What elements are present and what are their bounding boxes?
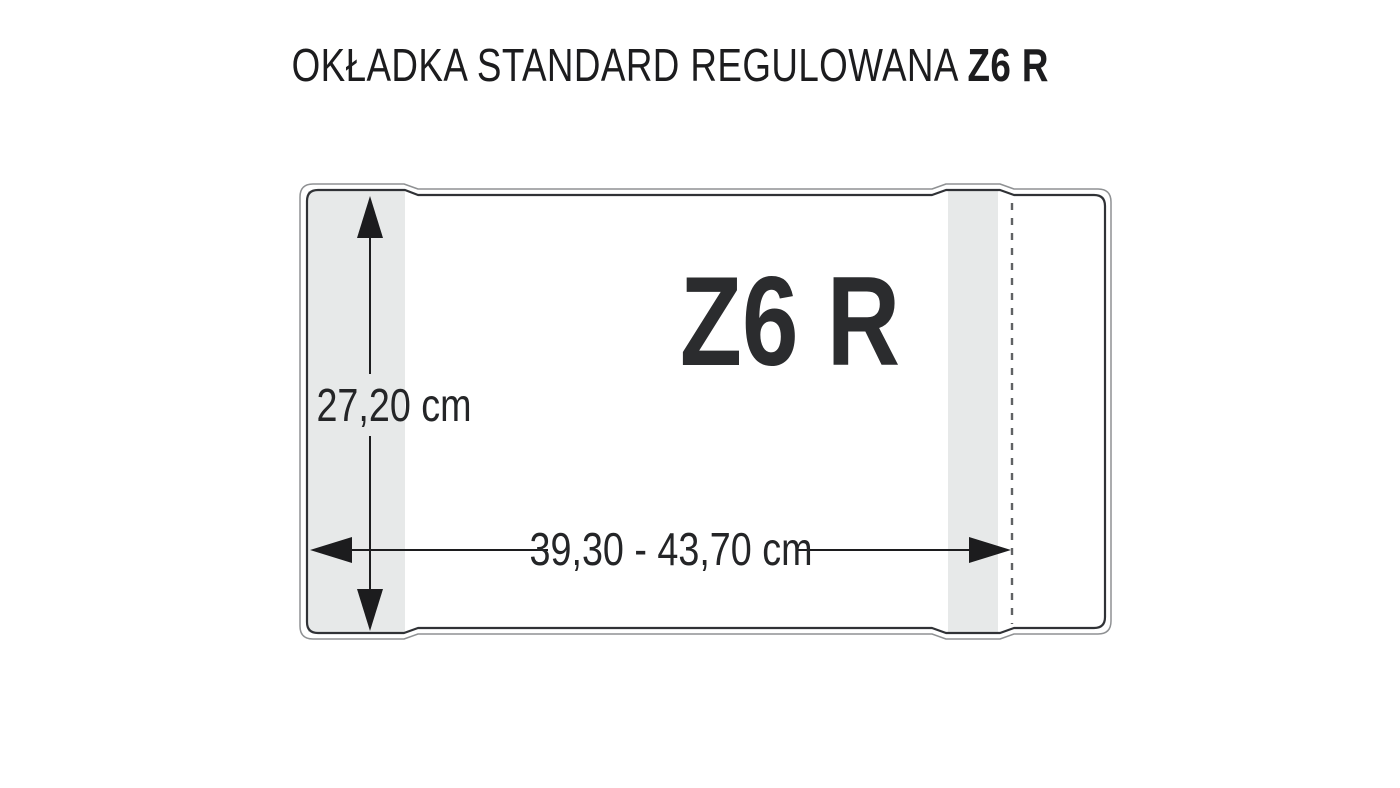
width-dimension-label: 39,30 - 43,70 cm <box>530 523 813 574</box>
cover-diagram: 27,20 cm 39,30 - 43,70 cm Z6 R <box>0 0 1400 788</box>
cover-model-label: Z6 R <box>680 251 900 392</box>
right-flap-strip <box>948 190 998 632</box>
height-dimension-label: 27,20 cm <box>316 379 471 430</box>
